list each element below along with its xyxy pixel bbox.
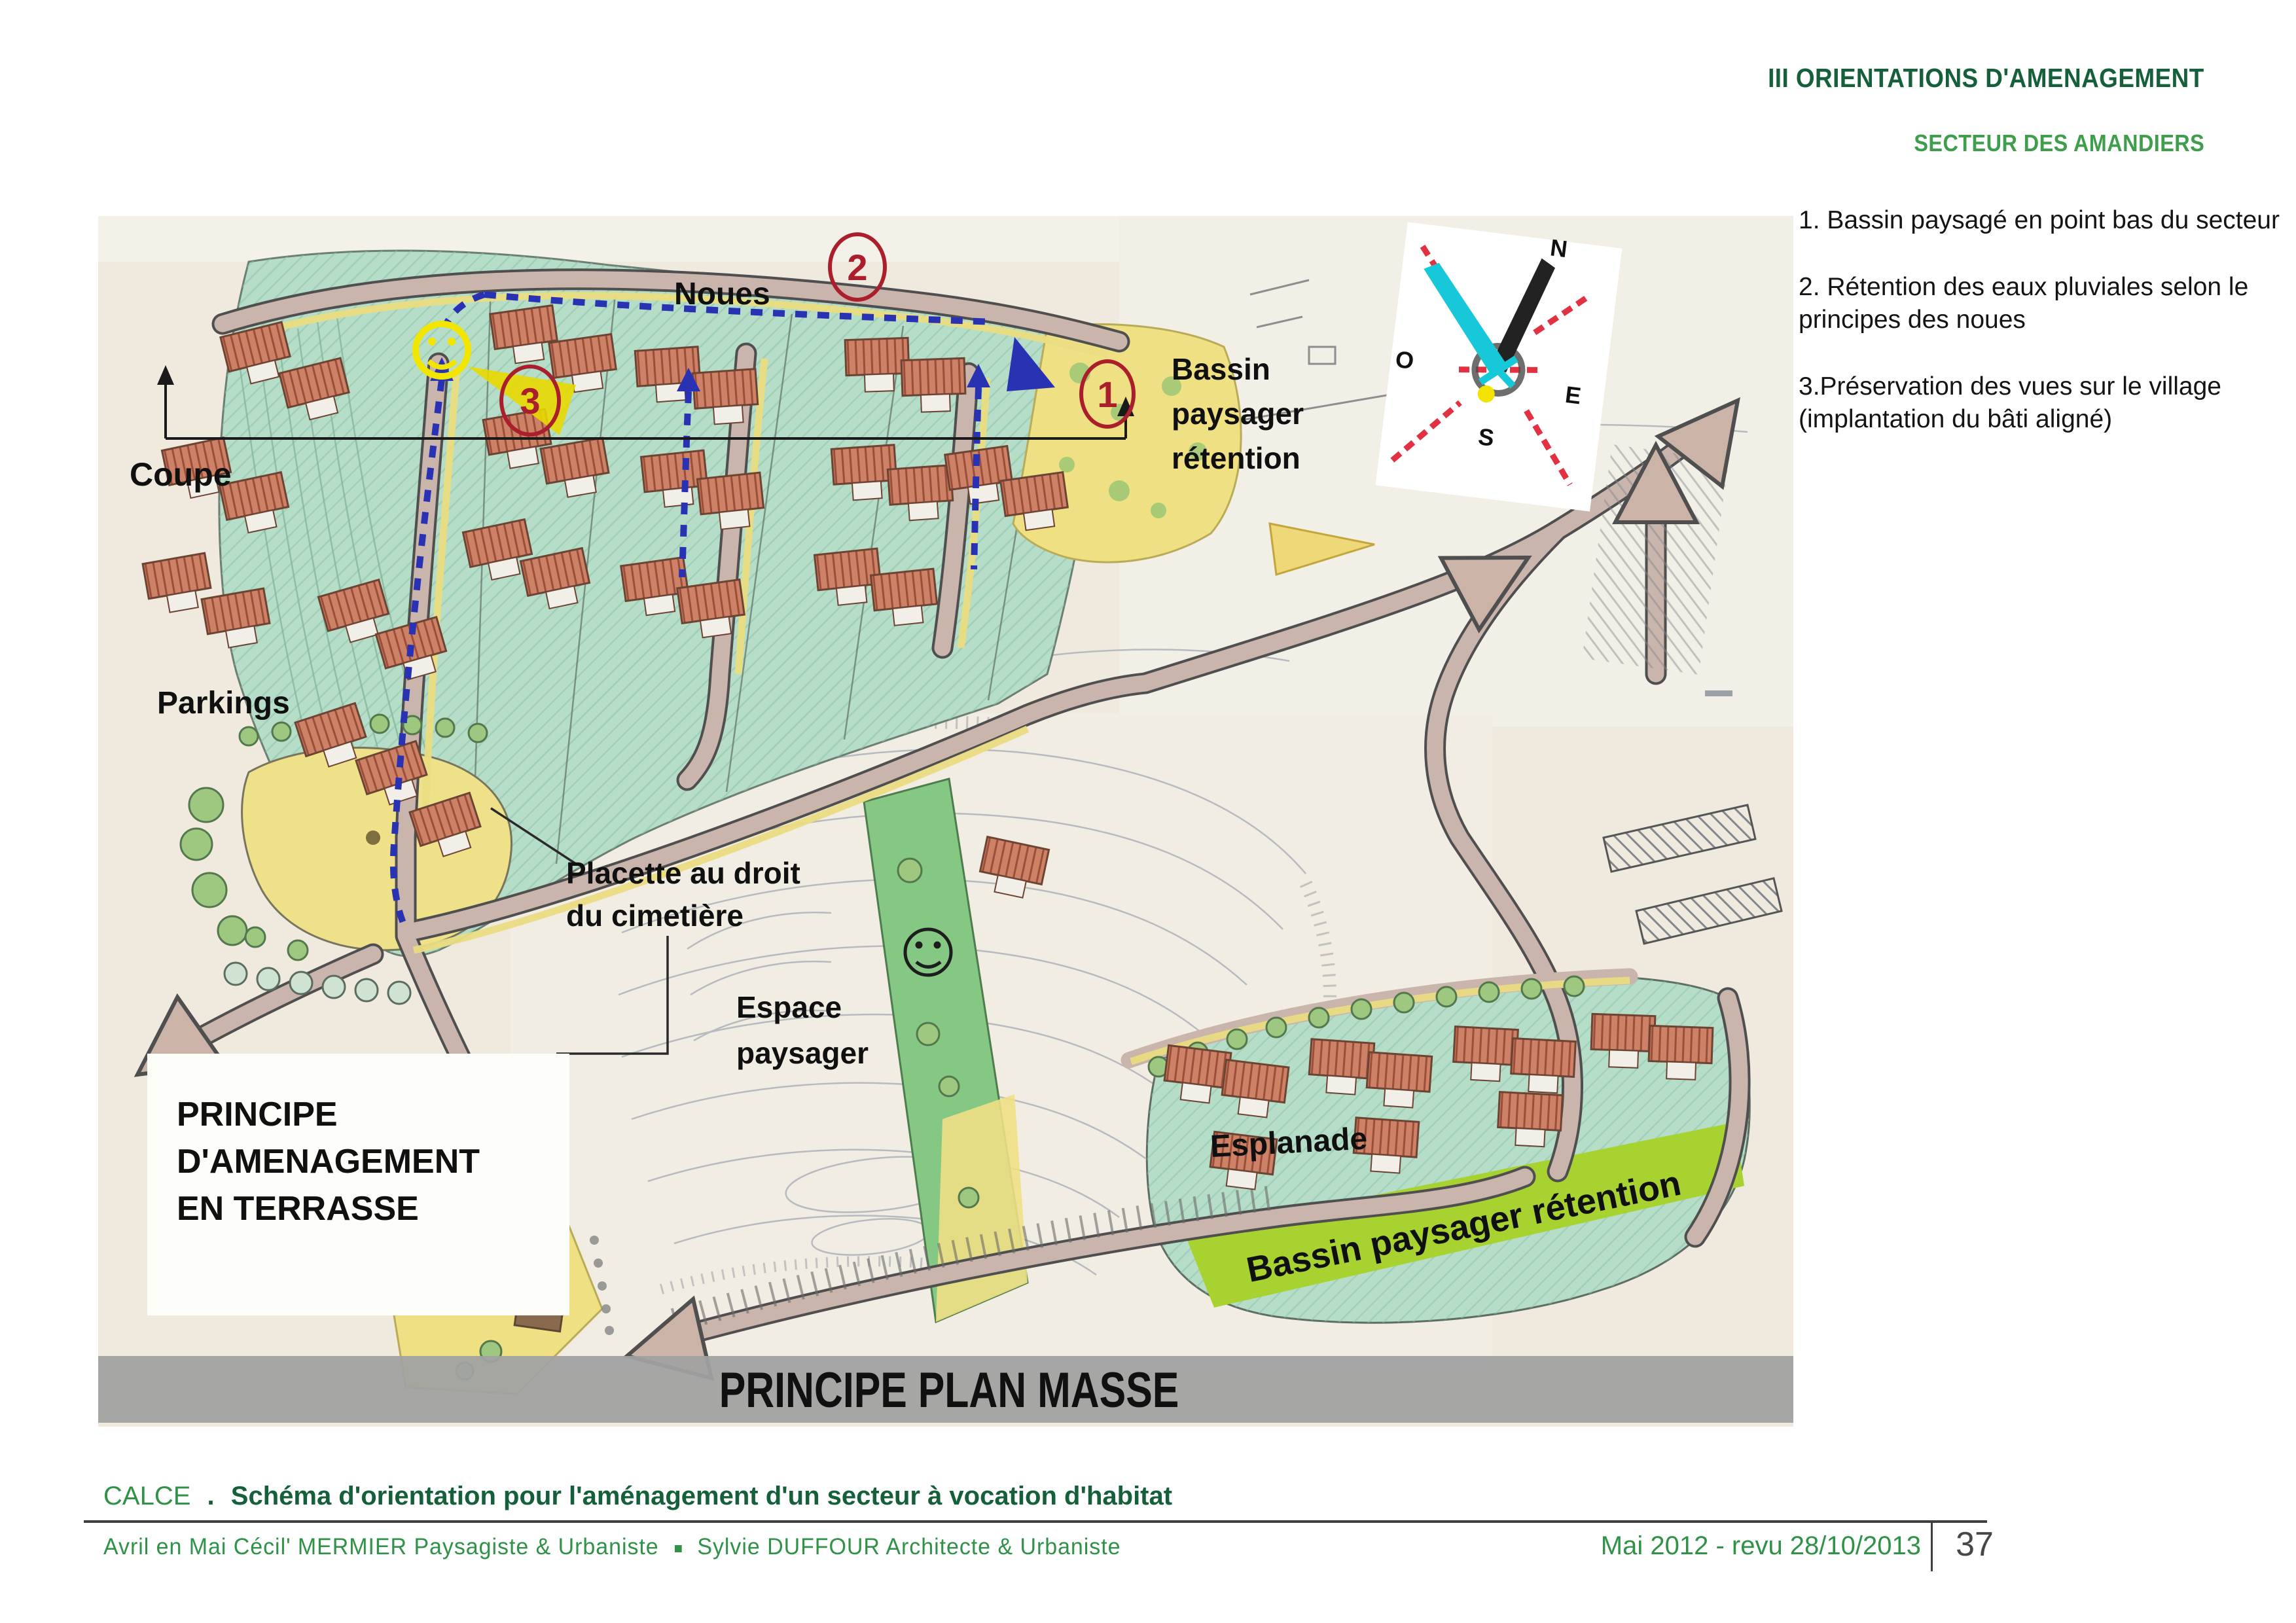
compass-o: O — [1394, 346, 1416, 374]
label-coupe: Coupe — [130, 456, 232, 493]
footer-authors: Avril en Mai Cécil' MERMIER Paysagiste &… — [103, 1534, 1121, 1560]
footer-date: Mai 2012 - revu 28/10/2013 — [1601, 1531, 1921, 1561]
box-line-3: EN TERRASSE — [177, 1190, 419, 1228]
footer-rule — [84, 1520, 1987, 1523]
label-placette-2: du cimetière — [566, 899, 744, 933]
compass-n: N — [1549, 234, 1569, 262]
marker-2: 2 — [847, 247, 867, 288]
box-line-1: PRINCIPE — [177, 1096, 338, 1133]
banner-title: PRINCIPE PLAN MASSE — [719, 1363, 1179, 1418]
principe-terrasse-box: PRINCIPE D'AMENAGEMENT EN TERRASSE — [147, 1054, 569, 1315]
label-bassin-1: Bassin — [1172, 352, 1270, 386]
box-line-2: D'AMENAGEMENT — [177, 1143, 480, 1181]
label-bassin-2: paysager — [1172, 397, 1304, 431]
label-parkings: Parkings — [157, 686, 290, 721]
label-bassin-3: rétention — [1172, 441, 1300, 475]
footer-author-2: Sylvie DUFFOUR Architecte & Urbaniste — [697, 1534, 1121, 1560]
master-plan-sketch: / Bassi — [98, 216, 1793, 1427]
label-noues: Noues — [674, 277, 770, 312]
compass-rose-icon: N O E S — [1375, 216, 1623, 511]
caption-place: CALCE — [103, 1482, 190, 1510]
caption-title: Schéma d'orientation pour l'aménagement … — [231, 1482, 1172, 1510]
page-subtitle: SECTEUR DES AMANDIERS — [1914, 130, 2204, 157]
note-item-3: 3.Préservation des vues sur le village (… — [1799, 370, 2295, 436]
orientation-notes: 1. Bassin paysagé en point bas du secteu… — [1799, 204, 2295, 470]
compass-s: S — [1477, 423, 1496, 452]
label-placette-1: Placette au droit — [566, 856, 800, 890]
footer-separator-dot — [675, 1545, 682, 1552]
note-item-1: 1. Bassin paysagé en point bas du secteu… — [1799, 204, 2295, 237]
marker-3: 3 — [520, 380, 540, 421]
caption-separator: . — [207, 1482, 215, 1510]
marker-1: 1 — [1097, 374, 1117, 415]
plan-masse-banner: PRINCIPE PLAN MASSE — [98, 1356, 1793, 1423]
footer-author-1: Avril en Mai Cécil' MERMIER Paysagiste &… — [103, 1534, 659, 1560]
page-title: III ORIENTATIONS D'AMENAGEMENT — [1768, 63, 2204, 94]
figure-caption: CALCE . Schéma d'orientation pour l'amén… — [103, 1482, 1172, 1511]
label-espace-2: paysager — [736, 1036, 869, 1070]
note-item-2: 2. Rétention des eaux pluviales selon le… — [1799, 271, 2295, 336]
compass-e: E — [1564, 381, 1583, 410]
page-number: 37 — [1945, 1525, 2004, 1564]
label-espace-1: Espace — [736, 990, 842, 1024]
document-page: III ORIENTATIONS D'AMENAGEMENT SECTEUR D… — [0, 0, 2296, 1623]
page-number-divider — [1931, 1522, 1933, 1571]
